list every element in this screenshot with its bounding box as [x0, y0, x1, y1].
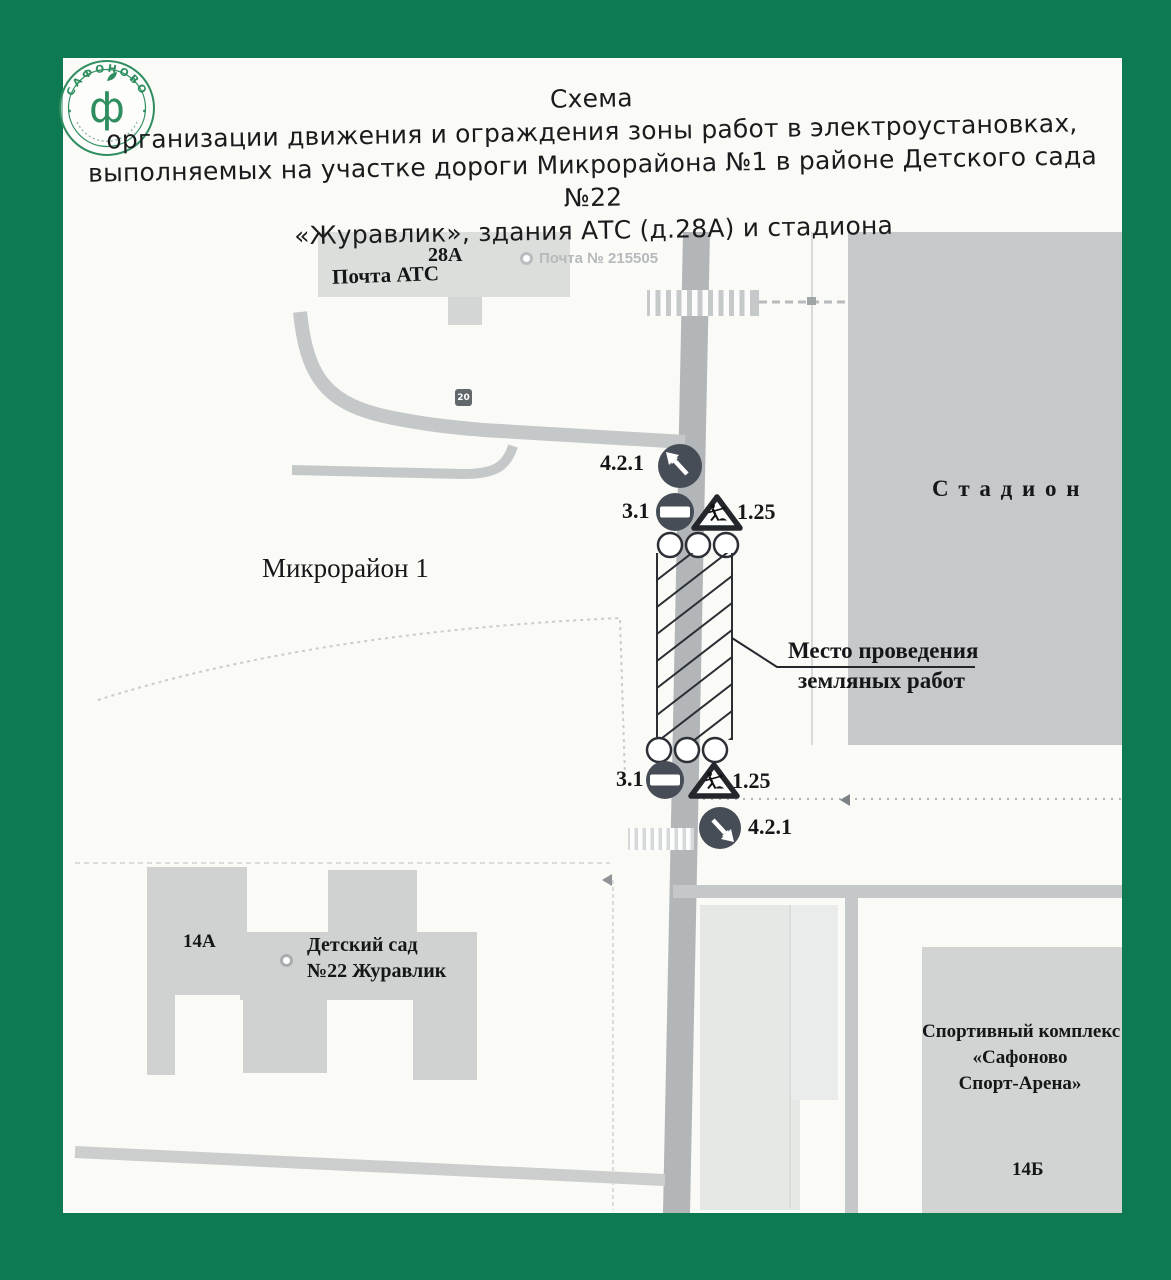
work-zone-label-line2: земляных работ: [798, 668, 965, 694]
sign-label-roadworks-top: 1.25: [737, 499, 776, 525]
kindergarten-icon: [280, 954, 293, 967]
path-marker-north: [807, 297, 816, 305]
sign-no-entry-3-1-bottom: [646, 761, 684, 799]
district-boundary-dashed: [98, 618, 625, 778]
sign-label-roadworks-bottom: 1.25: [732, 768, 771, 794]
crosswalk-north: [647, 290, 759, 316]
east-west-road: [673, 885, 1122, 898]
sign-label-detour-top: 4.2.1: [600, 450, 644, 476]
sign-no-entry-3-1-top: [656, 493, 694, 531]
post-office-icon: [520, 252, 533, 265]
kindergarten-label-line1: Детский сад: [307, 934, 418, 957]
sport-complex-number: 14Б: [1012, 1159, 1044, 1181]
sign-detour-4-2-1-top: [658, 444, 702, 488]
document-title: Схема организации движения и ограждения …: [62, 73, 1124, 256]
southwest-road: [75, 1152, 665, 1180]
sign-label-no-entry-top: 3.1: [622, 498, 650, 524]
barrier-posts-bottom: [647, 738, 727, 762]
screenshot-root: { "page": { "stamp": { "arc_text": "САФО…: [0, 0, 1171, 1280]
sign-detour-4-2-1-bottom: [699, 807, 741, 849]
speed-20-badge: 20: [455, 389, 472, 406]
south-vertical-road: [845, 892, 858, 1213]
sign-label-detour-bottom: 4.2.1: [748, 814, 792, 840]
kindergarten-number: 14А: [183, 931, 216, 953]
sport-complex-label-line2: «Сафоново: [922, 1047, 1118, 1069]
path-arrow-marker-west: [602, 874, 612, 886]
work-zone-label-line1: Место проведения: [788, 638, 978, 664]
post-marker-label: Почта № 215505: [539, 250, 658, 267]
sport-complex-label-line3: Спорт-Арена»: [922, 1073, 1118, 1095]
parking-area: [700, 905, 800, 1210]
curved-access-road: [300, 312, 685, 442]
branch-road: [292, 446, 513, 474]
sport-complex-label-line1: Спортивный комплекс: [922, 1021, 1118, 1043]
kindergarten-label-line2: №22 Журавлик: [307, 960, 446, 983]
stadium-label: С т а д и о н: [932, 476, 1082, 502]
path-arrow-marker-east: [840, 794, 850, 806]
district-label: Микрорайон 1: [262, 553, 429, 584]
crosswalk-south: [628, 828, 694, 850]
post-building-name: Почта АТС: [332, 261, 440, 290]
parking-area-2: [790, 905, 838, 1100]
sign-label-no-entry-bottom: 3.1: [616, 766, 644, 792]
